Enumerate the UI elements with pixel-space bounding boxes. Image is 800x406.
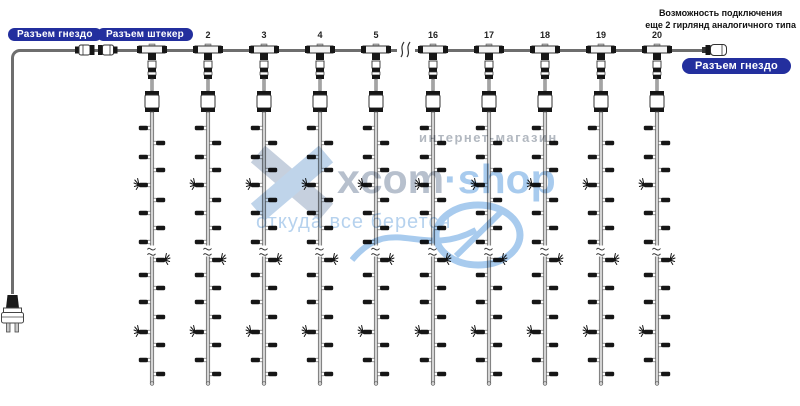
drop-connector-icon [541,61,549,79]
led-bulb-icon [209,198,221,202]
led-bulb-icon [546,168,558,172]
drop-wire [207,79,209,91]
drop-string-graphic [245,42,283,388]
curtain-drop: 4 [301,30,339,392]
string-break-icon [540,246,550,257]
curtain-drop: 17 [470,30,508,392]
ballast-box-icon [145,91,159,112]
string-wire-tip [655,382,659,386]
drop-number-label: 18 [526,30,564,40]
led-bulb-icon [434,141,446,145]
led-bulb-icon [139,240,151,244]
led-bulb-icon [434,198,446,202]
led-bulb-icon [476,211,488,215]
led-bulb-icon [434,226,446,230]
flash-bulb-icon [302,326,319,337]
led-bulb-icon [490,141,502,145]
led-bulb-icon [420,211,432,215]
led-bulb-icon [546,343,558,347]
led-bulb-icon [377,286,389,290]
flash-bulb-icon [134,326,151,337]
led-bulb-icon [546,372,558,376]
string-wire-tip [543,382,547,386]
led-bulb-icon [644,358,656,362]
ballast-box-icon [369,91,383,112]
drop-number-label: 20 [638,30,676,40]
led-bulb-icon [251,300,263,304]
led-bulb-icon [658,315,670,319]
drop-string-graphic [470,42,508,388]
led-bulb-icon [139,358,151,362]
led-bulb-icon [602,141,614,145]
led-bulb-icon [195,211,207,215]
string-break-icon [596,246,606,257]
led-bulb-icon [434,372,446,376]
drop-number-label: 4 [301,30,339,40]
string-wire-tip [318,382,322,386]
drop-connector-icon [316,61,324,79]
drop-string-graphic [301,42,339,388]
drop-number-label: 5 [357,30,395,40]
label-left-socket: Разъем гнездо [8,28,102,41]
led-bulb-icon [658,343,670,347]
t-junction-icon [249,44,279,60]
led-bulb-icon [644,300,656,304]
led-bulb-icon [490,286,502,290]
led-bulb-icon [420,126,432,130]
led-bulb-icon [265,286,277,290]
led-bulb-icon [658,286,670,290]
led-bulb-icon [321,141,333,145]
curtain-drop [133,30,171,392]
led-bulb-icon [195,273,207,277]
flash-bulb-icon [246,179,263,190]
plug-connector-icon [98,45,118,55]
led-bulb-icon [588,211,600,215]
t-junction-icon [137,44,167,60]
flash-bulb-icon [358,179,375,190]
led-bulb-icon [434,315,446,319]
led-bulb-icon [434,168,446,172]
led-bulb-icon [658,141,670,145]
label-right-socket: Разъем гнездо [682,58,791,74]
led-bulb-icon [377,343,389,347]
flash-bulb-icon [134,179,151,190]
ballast-box-icon [482,91,496,112]
flash-bulb-icon [471,179,488,190]
t-junction-icon [586,44,616,60]
led-bulb-icon [153,141,165,145]
led-bulb-icon [265,315,277,319]
string-wire-tip [431,382,435,386]
led-bulb-icon [153,168,165,172]
led-bulb-icon [588,126,600,130]
led-bulb-icon [363,240,375,244]
curtain-drop: 2 [189,30,227,392]
led-bulb-icon [644,211,656,215]
main-wire-break-icon [396,40,416,60]
led-bulb-icon [363,211,375,215]
drop-string-graphic [357,42,395,388]
led-bulb-icon [490,226,502,230]
led-bulb-icon [532,155,544,159]
led-bulb-icon [209,226,221,230]
led-bulb-icon [265,343,277,347]
led-bulb-icon [420,300,432,304]
flash-bulb-icon [415,179,432,190]
flash-bulb-icon [527,179,544,190]
drop-string-graphic [582,42,620,388]
drop-wire [656,79,658,91]
string-wire-tip [374,382,378,386]
garland-curtain-diagram: Разъем гнездо Разъем штекер Разъем гнезд… [0,0,800,406]
drop-connector-icon [485,61,493,79]
drop-number-label [133,30,171,40]
drop-string-graphic [133,42,171,388]
led-bulb-icon [377,198,389,202]
power-cord-wire [11,58,14,294]
led-bulb-icon [546,198,558,202]
flash-bulb-icon [639,326,656,337]
led-bulb-icon [658,198,670,202]
led-bulb-icon [532,358,544,362]
drop-connector-icon [204,61,212,79]
diagram-layer: Разъем гнездо Разъем штекер Разъем гнезд… [0,0,800,406]
note-line-1: Возможность подключения [645,8,796,20]
string-wire-tip [206,382,210,386]
led-bulb-icon [588,155,600,159]
led-bulb-icon [363,358,375,362]
led-bulb-icon [363,300,375,304]
curtain-drop: 16 [414,30,452,392]
led-bulb-icon [363,126,375,130]
led-bulb-icon [307,358,319,362]
led-bulb-icon [532,273,544,277]
led-bulb-icon [532,240,544,244]
flash-bulb-icon [190,179,207,190]
power-plug-icon [0,294,30,340]
t-junction-icon [418,44,448,60]
led-bulb-icon [139,300,151,304]
flash-bulb-icon [639,179,656,190]
led-bulb-icon [265,198,277,202]
drop-connector-icon [372,61,380,79]
end-socket-connector-icon [702,43,730,57]
led-bulb-icon [321,168,333,172]
led-bulb-icon [644,273,656,277]
led-bulb-icon [476,273,488,277]
led-bulb-icon [209,372,221,376]
flash-bulb-icon [471,326,488,337]
led-bulb-icon [307,211,319,215]
string-break-icon [259,246,269,257]
led-bulb-icon [476,126,488,130]
led-bulb-icon [546,286,558,290]
led-bulb-icon [321,226,333,230]
led-bulb-icon [420,155,432,159]
led-bulb-icon [265,372,277,376]
string-break-icon [147,246,157,257]
led-bulb-icon [658,168,670,172]
curtain-drop: 5 [357,30,395,392]
flash-bulb-icon [302,179,319,190]
drop-wire [432,79,434,91]
led-bulb-icon [251,358,263,362]
drop-number-label: 2 [189,30,227,40]
led-bulb-icon [588,273,600,277]
led-bulb-icon [321,343,333,347]
drop-number-label: 3 [245,30,283,40]
flash-bulb-icon [583,326,600,337]
led-bulb-icon [153,372,165,376]
led-bulb-icon [658,372,670,376]
led-bulb-icon [195,240,207,244]
led-bulb-icon [251,273,263,277]
led-bulb-icon [377,315,389,319]
flash-bulb-icon [415,326,432,337]
curtain-drop: 3 [245,30,283,392]
drop-string-graphic [414,42,452,388]
led-bulb-icon [476,358,488,362]
led-bulb-icon [209,286,221,290]
drop-number-label: 16 [414,30,452,40]
led-bulb-icon [377,168,389,172]
led-bulb-icon [265,226,277,230]
led-bulb-icon [490,168,502,172]
led-bulb-icon [153,315,165,319]
led-bulb-icon [644,240,656,244]
drop-string-graphic [189,42,227,388]
drop-connector-icon [260,61,268,79]
led-bulb-icon [377,141,389,145]
t-junction-icon [530,44,560,60]
led-bulb-icon [363,273,375,277]
led-bulb-icon [265,141,277,145]
led-bulb-icon [307,240,319,244]
led-bulb-icon [546,226,558,230]
led-bulb-icon [532,211,544,215]
led-bulb-icon [602,343,614,347]
led-bulb-icon [153,286,165,290]
led-bulb-icon [209,168,221,172]
drop-string-graphic [638,42,676,388]
led-bulb-icon [195,358,207,362]
led-bulb-icon [363,155,375,159]
curtain-drop: 18 [526,30,564,392]
ballast-box-icon [538,91,552,112]
string-break-icon [484,246,494,257]
led-bulb-icon [546,141,558,145]
string-wire-tip [599,382,603,386]
t-junction-icon [474,44,504,60]
led-bulb-icon [195,126,207,130]
drop-wire [319,79,321,91]
led-bulb-icon [420,358,432,362]
led-bulb-icon [588,240,600,244]
led-bulb-icon [377,226,389,230]
drop-string-graphic [526,42,564,388]
led-bulb-icon [602,198,614,202]
led-bulb-icon [251,211,263,215]
ballast-box-icon [594,91,608,112]
led-bulb-icon [139,126,151,130]
led-bulb-icon [209,343,221,347]
ballast-box-icon [313,91,327,112]
led-bulb-icon [602,286,614,290]
socket-connector-icon [75,45,95,55]
led-bulb-icon [195,155,207,159]
drop-wire [544,79,546,91]
led-bulb-icon [532,300,544,304]
string-break-icon [315,246,325,257]
led-bulb-icon [644,126,656,130]
led-bulb-icon [490,372,502,376]
led-bulb-icon [265,168,277,172]
led-bulb-icon [307,273,319,277]
string-break-icon [652,246,662,257]
led-bulb-icon [658,226,670,230]
string-break-icon [428,246,438,257]
drop-wire [488,79,490,91]
string-break-icon [371,246,381,257]
led-bulb-icon [490,343,502,347]
led-bulb-icon [321,315,333,319]
led-bulb-icon [602,168,614,172]
drop-connector-icon [597,61,605,79]
led-bulb-icon [209,315,221,319]
flash-bulb-icon [246,326,263,337]
led-bulb-icon [420,240,432,244]
flash-bulb-icon [190,326,207,337]
note-extension: Возможность подключения еще 2 гирлянд ан… [645,8,796,31]
curtain-drop: 19 [582,30,620,392]
drop-wire [600,79,602,91]
t-junction-icon [193,44,223,60]
led-bulb-icon [476,240,488,244]
led-bulb-icon [434,343,446,347]
led-bulb-icon [532,126,544,130]
led-bulb-icon [434,286,446,290]
led-bulb-icon [307,155,319,159]
led-bulb-icon [476,300,488,304]
led-bulb-icon [139,273,151,277]
led-bulb-icon [602,372,614,376]
drop-number-label: 17 [470,30,508,40]
drop-wire [151,79,153,91]
led-bulb-icon [307,126,319,130]
led-bulb-icon [420,273,432,277]
led-bulb-icon [490,315,502,319]
led-bulb-icon [588,300,600,304]
drop-connector-icon [429,61,437,79]
curtain-drop: 20 [638,30,676,392]
drop-connector-icon [148,61,156,79]
led-bulb-icon [490,198,502,202]
led-bulb-icon [195,300,207,304]
led-bulb-icon [251,126,263,130]
led-bulb-icon [321,372,333,376]
string-break-icon [203,246,213,257]
ballast-box-icon [257,91,271,112]
led-bulb-icon [602,226,614,230]
t-junction-icon [361,44,391,60]
led-bulb-icon [644,155,656,159]
led-bulb-icon [321,198,333,202]
led-bulb-icon [321,286,333,290]
detachable-connector-pair [75,43,121,57]
led-bulb-icon [377,372,389,376]
ballast-box-icon [426,91,440,112]
flash-bulb-icon [527,326,544,337]
led-bulb-icon [307,300,319,304]
t-junction-icon [305,44,335,60]
led-bulb-icon [153,226,165,230]
string-wire-tip [262,382,266,386]
led-bulb-icon [251,240,263,244]
led-bulb-icon [209,141,221,145]
string-wire-tip [150,382,154,386]
t-junction-icon [642,44,672,60]
led-bulb-icon [139,155,151,159]
led-bulb-icon [476,155,488,159]
led-bulb-icon [602,315,614,319]
ballast-box-icon [650,91,664,112]
flash-bulb-icon [358,326,375,337]
led-bulb-icon [546,315,558,319]
string-wire-tip [487,382,491,386]
led-bulb-icon [139,211,151,215]
drop-wire [375,79,377,91]
drop-wire [263,79,265,91]
led-bulb-icon [588,358,600,362]
led-bulb-icon [153,343,165,347]
led-bulb-icon [153,198,165,202]
led-bulb-icon [251,155,263,159]
drop-connector-icon [653,61,661,79]
drop-number-label: 19 [582,30,620,40]
ballast-box-icon [201,91,215,112]
flash-bulb-icon [583,179,600,190]
